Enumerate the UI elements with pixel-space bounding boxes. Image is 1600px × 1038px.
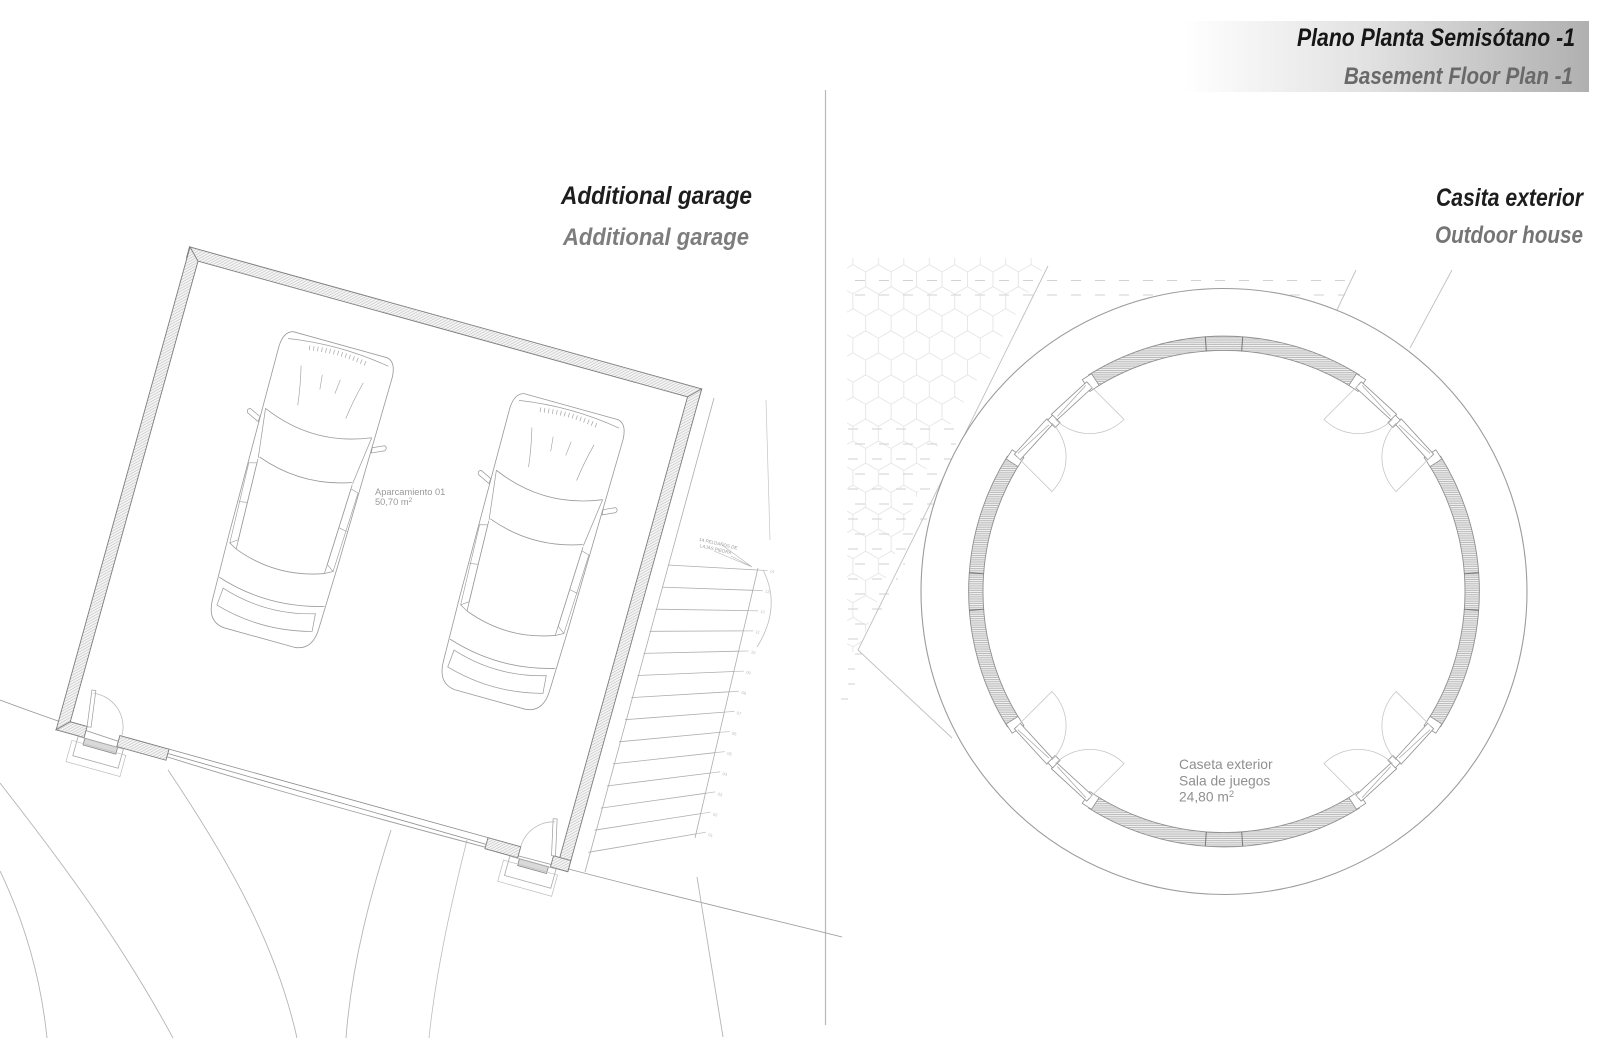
svg-text:Basement Floor Plan -1: Basement Floor Plan -1 (1344, 63, 1573, 90)
svg-text:Additional garage: Additional garage (560, 182, 752, 210)
svg-text:Aparcamiento 01: Aparcamiento 01 (375, 487, 445, 497)
svg-text:Additional garage: Additional garage (562, 224, 749, 251)
svg-text:50,70 m2: 50,70 m2 (375, 497, 413, 507)
svg-text:Casita exterior: Casita exterior (1436, 184, 1584, 212)
svg-text:Caseta exterior: Caseta exterior (1179, 757, 1273, 772)
svg-text:24,80 m2: 24,80 m2 (1179, 789, 1234, 805)
svg-text:Sala de juegos: Sala de juegos (1179, 773, 1270, 788)
svg-text:Outdoor house: Outdoor house (1435, 222, 1583, 249)
svg-text:Plano Planta Semisótano -1: Plano Planta Semisótano -1 (1297, 24, 1575, 52)
